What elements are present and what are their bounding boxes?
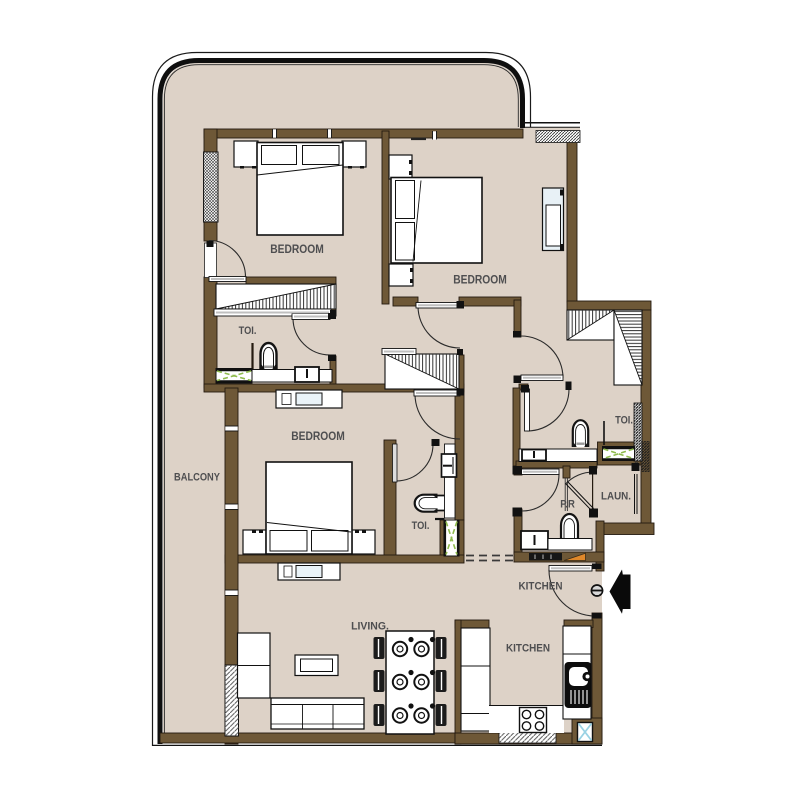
svg-text:TOI.: TOI. [615, 415, 633, 427]
svg-text:LIVING.: LIVING. [351, 620, 389, 632]
svg-text:BEDROOM: BEDROOM [270, 243, 324, 256]
svg-text:BALCONY: BALCONY [174, 472, 220, 484]
svg-text:LAUN.: LAUN. [601, 491, 631, 503]
svg-text:KITCHEN: KITCHEN [518, 581, 562, 592]
svg-text:TOI.: TOI. [239, 325, 257, 337]
svg-text:KITCHEN: KITCHEN [506, 643, 550, 654]
svg-text:BEDROOM: BEDROOM [291, 430, 345, 443]
svg-text:TOI.: TOI. [412, 520, 430, 532]
svg-text:P.R: P.R [560, 499, 575, 511]
svg-text:BEDROOM: BEDROOM [453, 274, 507, 287]
